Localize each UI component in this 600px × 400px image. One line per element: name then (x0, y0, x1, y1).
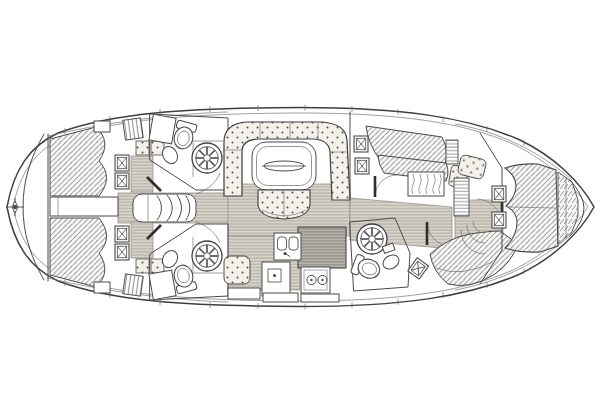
toilet-icon (350, 254, 382, 282)
dark-worktop (298, 227, 346, 268)
aft-berth-top (50, 127, 107, 196)
shower-grate-icon (192, 143, 222, 173)
yacht-layout-diagram (0, 0, 600, 400)
stern-deck (6, 134, 48, 281)
companionway-steps-icon (133, 194, 196, 222)
twin-sink-icon (274, 233, 301, 260)
deck-hatch-icon (115, 173, 129, 189)
washbasin-icon (380, 252, 401, 272)
deck-hatch-icon (115, 244, 129, 260)
cushion (136, 259, 149, 273)
deck-hatch-icon (408, 258, 429, 279)
deck-hatch-icon (355, 158, 369, 174)
salon-stool (258, 190, 310, 219)
aft-cabin-bottom-floor (131, 222, 153, 258)
deck-hatch-icon (115, 226, 129, 242)
shelf-locker (454, 178, 469, 216)
locker (149, 270, 176, 300)
locker (94, 121, 110, 132)
fridge-icon (262, 262, 290, 296)
cushion (136, 141, 149, 155)
salon-table-icon (252, 142, 316, 190)
galley-seat (224, 256, 250, 284)
layout-plan-canvas (0, 0, 600, 400)
deck-hatch-icon (354, 136, 368, 152)
deck-hatch-icon (492, 186, 506, 202)
locker (149, 114, 176, 144)
hanging-locker-icon (408, 172, 444, 196)
shower-grate-icon (192, 241, 222, 271)
locker (94, 282, 110, 293)
shelf-locker (446, 140, 458, 164)
louvre-locker (123, 118, 144, 140)
louvre-locker (123, 274, 144, 296)
deck-hatch-icon (115, 155, 129, 171)
engine-box (50, 197, 118, 216)
aft-cabin-top-floor (131, 156, 153, 192)
deck-hatch-icon (492, 212, 506, 228)
stove-burner-icon (301, 267, 330, 293)
aft-berth-bottom (50, 218, 107, 287)
shower-grate-icon (357, 224, 387, 254)
